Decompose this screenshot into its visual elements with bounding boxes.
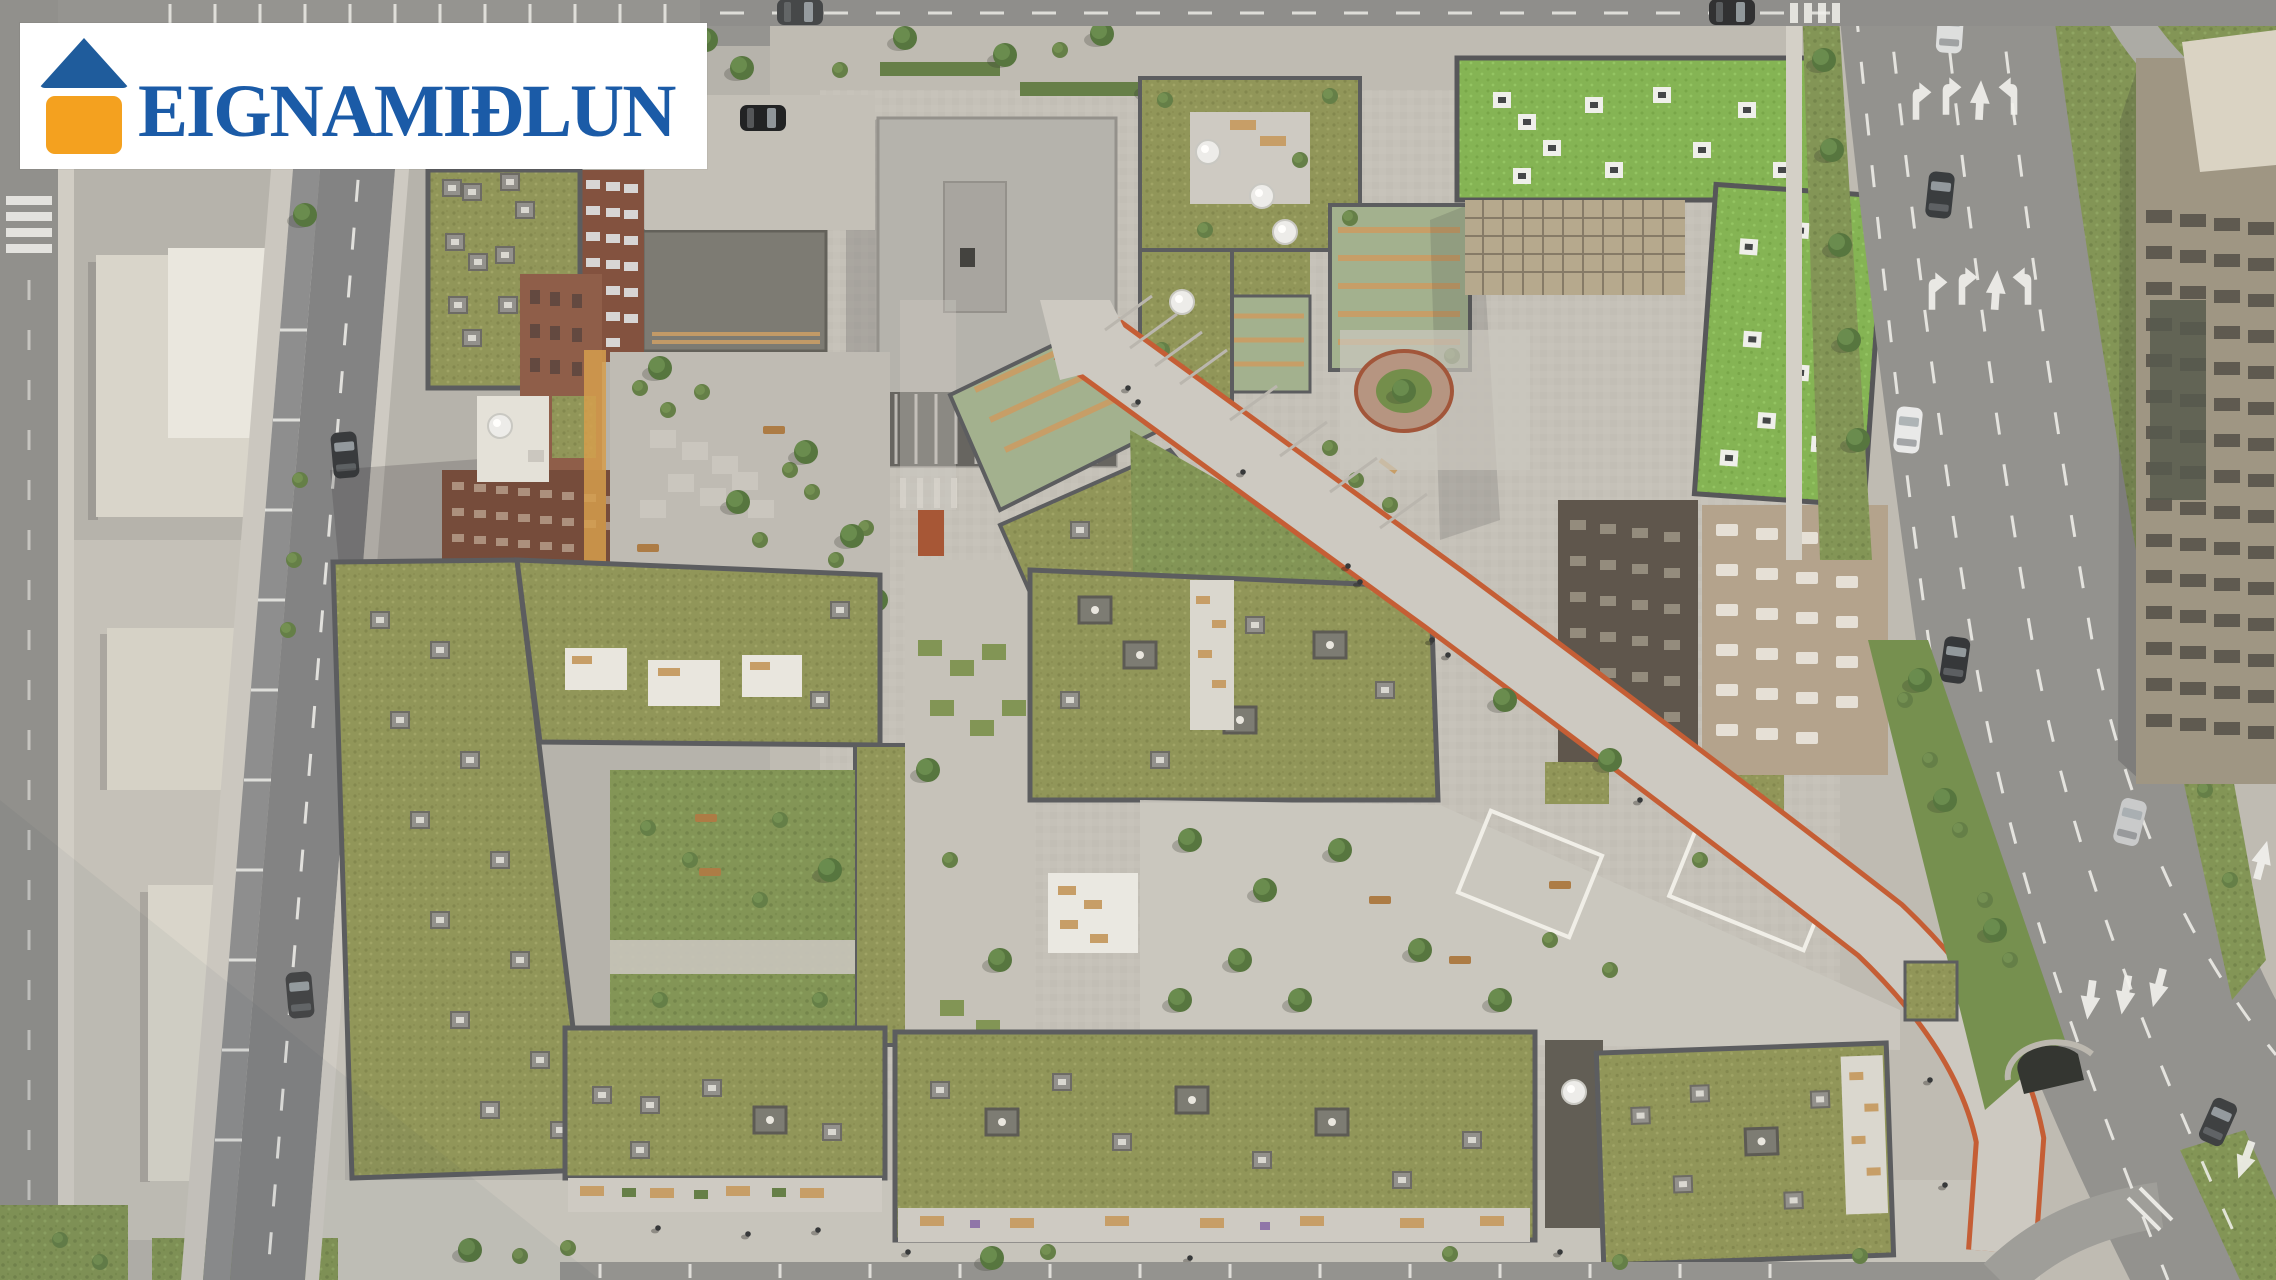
- agency-logo-watermark: EIGNAMIÐLUN: [20, 23, 707, 169]
- agency-logo-text: EIGNAMIÐLUN: [138, 74, 674, 149]
- aerial-scene: [0, 0, 2276, 1280]
- house-roof-icon: [39, 38, 129, 88]
- light-overlay: [0, 0, 2276, 1280]
- aerial-render-screenshot: EIGNAMIÐLUN: [0, 0, 2276, 1280]
- house-wall-icon: [46, 96, 122, 154]
